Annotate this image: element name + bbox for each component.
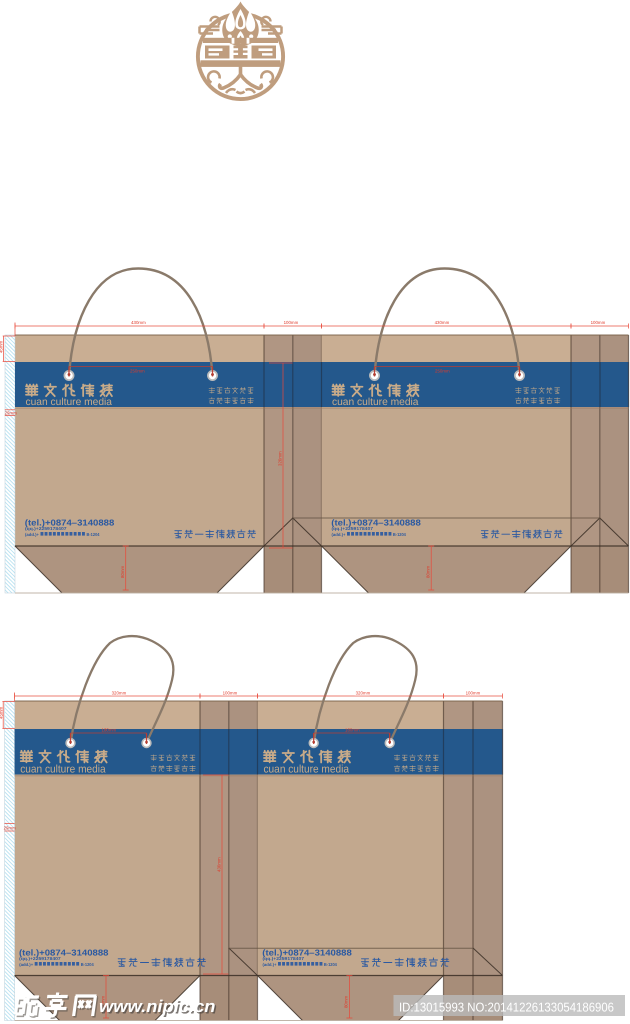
svg-text:45mm: 45mm	[0, 706, 3, 719]
svg-text:80mm: 80mm	[344, 995, 349, 1008]
svg-text:29mm: 29mm	[5, 410, 18, 415]
svg-text:320mm: 320mm	[112, 691, 127, 696]
svg-text:B-1204: B-1204	[324, 962, 338, 967]
svg-text:ID:13015993 NO:201412261330541: ID:13015993 NO:20141226133054186906	[399, 1000, 614, 1015]
svg-text:430mm: 430mm	[131, 320, 146, 325]
svg-text:430mm: 430mm	[217, 857, 222, 872]
svg-text:430mm: 430mm	[435, 320, 450, 325]
svg-text:cuan culture media: cuan culture media	[264, 763, 350, 775]
svg-text:cuan culture media: cuan culture media	[20, 763, 106, 775]
svg-text:(qq.)+2259178407: (qq.)+2259178407	[263, 956, 305, 961]
svg-text:(qq.)+2259178407: (qq.)+2259178407	[19, 956, 61, 961]
svg-text:320mm: 320mm	[356, 691, 371, 696]
svg-text:100mm: 100mm	[223, 691, 238, 696]
svg-text:29mm: 29mm	[4, 826, 17, 831]
svg-text:180mm: 180mm	[345, 728, 360, 733]
svg-text:80mm: 80mm	[426, 565, 431, 578]
svg-text:(add.)+: (add.)+	[332, 532, 346, 537]
svg-text:100mm: 100mm	[284, 320, 299, 325]
svg-text:(add.)+: (add.)+	[263, 962, 277, 967]
svg-text:250mm: 250mm	[435, 369, 450, 374]
svg-text:100mm: 100mm	[591, 320, 606, 325]
svg-text:45mm: 45mm	[0, 340, 4, 353]
svg-text:(add.)+: (add.)+	[19, 962, 33, 967]
svg-text:B-1204: B-1204	[393, 532, 407, 537]
svg-text:www.nipic.cn: www.nipic.cn	[99, 997, 216, 1016]
svg-text:(add.)+: (add.)+	[25, 532, 39, 537]
svg-text:cuan culture media: cuan culture media	[332, 397, 419, 408]
svg-text:B-1204: B-1204	[87, 532, 101, 537]
svg-text:cuan culture media: cuan culture media	[26, 397, 113, 408]
svg-text:250mm: 250mm	[130, 369, 145, 374]
svg-text:B-1204: B-1204	[81, 962, 95, 967]
svg-text:100mm: 100mm	[466, 691, 481, 696]
svg-text:(qq.)+2259178407: (qq.)+2259178407	[332, 526, 374, 531]
svg-text:320mm: 320mm	[278, 451, 283, 466]
svg-text:(qq.)+2259178407: (qq.)+2259178407	[25, 526, 67, 531]
svg-text:80mm: 80mm	[120, 565, 125, 578]
svg-text:180mm: 180mm	[102, 728, 117, 733]
